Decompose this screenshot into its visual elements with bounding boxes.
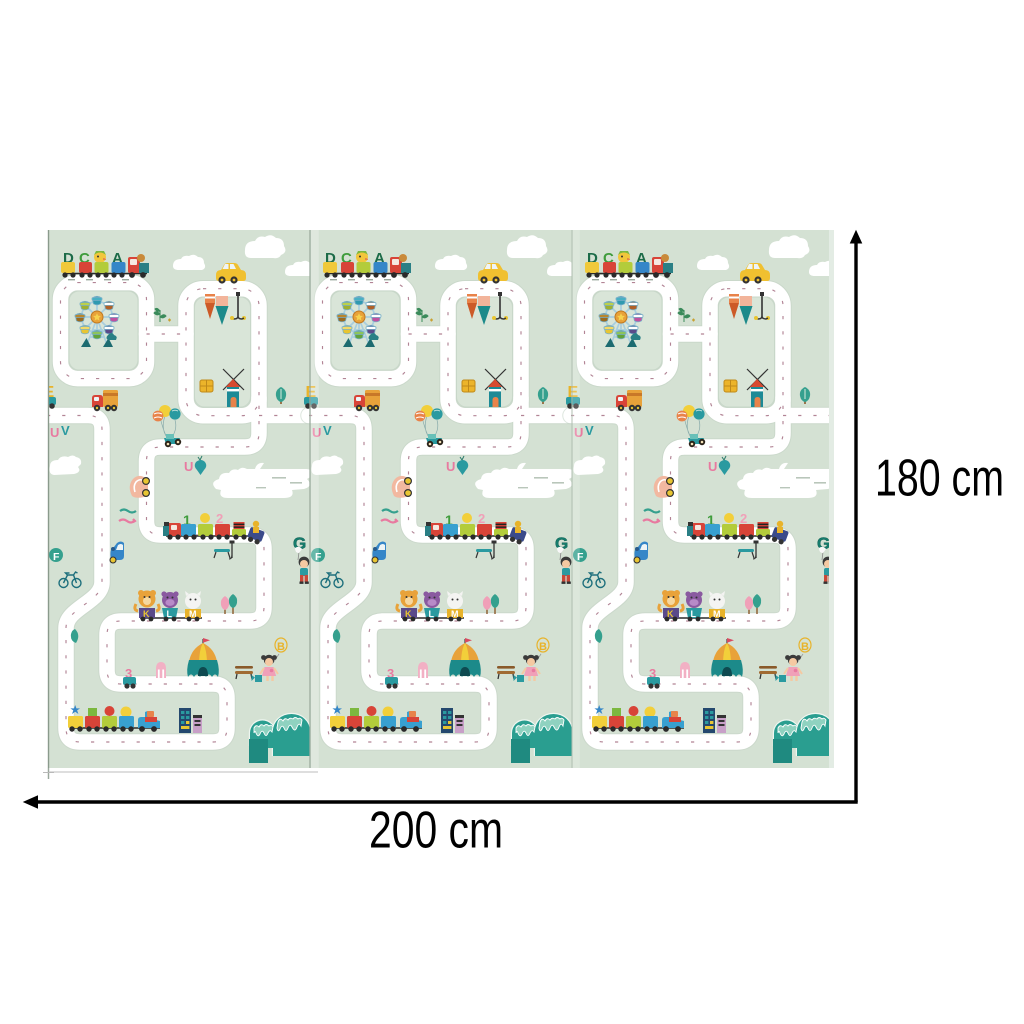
svg-text:200 cm: 200 cm [369, 802, 503, 860]
svg-text:180 cm: 180 cm [875, 450, 1004, 508]
